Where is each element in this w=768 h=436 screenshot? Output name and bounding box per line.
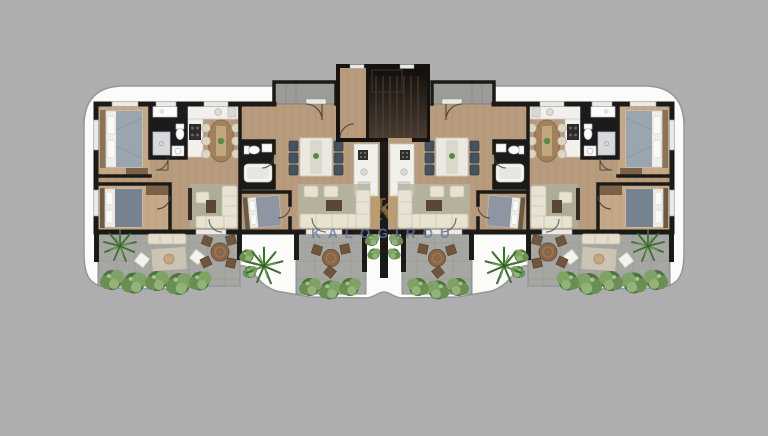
- stair-core: [336, 64, 430, 143]
- floor-plan-screenshot: K KALOGIROU: [0, 0, 768, 436]
- watermark-monogram: K: [370, 193, 399, 228]
- elevator-room: [340, 68, 366, 138]
- staircase: [369, 68, 427, 138]
- watermark-brand-text: KALOGIROU: [311, 226, 457, 241]
- core-window: [400, 65, 414, 69]
- core-door-opening: [388, 138, 412, 143]
- core-window: [350, 65, 364, 69]
- floor-plan-svg: K KALOGIROU: [0, 0, 768, 436]
